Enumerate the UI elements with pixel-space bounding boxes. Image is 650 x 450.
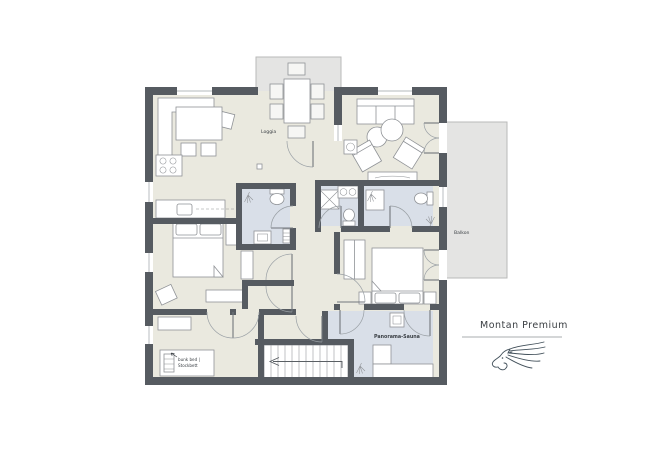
horse-head-logo-icon xyxy=(492,342,545,370)
balcony-door-opening xyxy=(439,250,447,280)
bedroom2-wall-bottom-a xyxy=(364,304,404,310)
balcony-area xyxy=(443,122,507,278)
stairs-wall-right xyxy=(348,345,354,377)
sauna-bench xyxy=(373,364,433,378)
bunk-bed-ladder xyxy=(164,354,174,372)
sauna-heater xyxy=(390,313,404,327)
bath2-wall-bottom xyxy=(341,226,364,232)
bedroom2-wall-bottom-b xyxy=(430,304,447,310)
loggia-table xyxy=(284,79,310,123)
ensuite-wall-right-b xyxy=(290,228,296,244)
column-marker xyxy=(257,164,262,169)
nightstand xyxy=(424,292,436,304)
bunk-bed-label-line1: bunk bed | xyxy=(178,357,200,362)
ensuite-wall-top xyxy=(236,183,296,189)
staircase xyxy=(264,345,348,378)
loggia-chair xyxy=(288,63,305,75)
dining-table xyxy=(176,107,222,140)
floor-plan-drawing: Loggia Balkon Panorama-Sauna bunk bed | … xyxy=(0,0,650,450)
bedroom2-wall-stub xyxy=(334,304,340,310)
hall-wardrobe xyxy=(241,251,253,279)
wall-kitchen-bedroom1 xyxy=(153,218,240,224)
bedroom1-wall-bottom-a xyxy=(153,309,207,315)
sauna-bench xyxy=(373,345,391,364)
floor-plan-page: Loggia Balkon Panorama-Sauna bunk bed | … xyxy=(0,0,650,450)
bedroom2-wall-left xyxy=(334,232,340,274)
brand-name: Montan Premium xyxy=(480,320,568,331)
loggia-chair xyxy=(311,104,324,119)
balcony-door-opening xyxy=(439,123,447,153)
bathrooms-wall-top xyxy=(315,180,439,186)
sauna-label: Panorama-Sauna xyxy=(374,334,420,340)
hall-wall-b xyxy=(242,286,248,309)
sofa xyxy=(357,99,414,124)
bath3-wall-bottom-a xyxy=(364,226,390,232)
bed-bench xyxy=(206,290,243,302)
sauna-wall-left xyxy=(322,311,328,343)
kids-room-wall-right xyxy=(258,315,264,377)
balcony-label: Balkon xyxy=(454,230,470,236)
bath3-wall-bottom-b xyxy=(412,226,439,232)
hall-wall-a xyxy=(242,280,294,286)
wall-loggia-jog xyxy=(334,95,342,125)
ensuite-wall-right-a xyxy=(290,189,296,206)
radiator xyxy=(283,229,290,243)
loggia-chair xyxy=(311,84,324,99)
stairs-wall-top xyxy=(255,339,354,345)
kitchen-sink xyxy=(177,204,192,215)
pillow xyxy=(399,293,420,303)
side-table xyxy=(344,140,357,154)
dining-chair xyxy=(181,143,196,156)
stove xyxy=(156,155,182,176)
loggia-chair xyxy=(270,84,283,99)
dining-chair xyxy=(201,143,216,156)
vanity xyxy=(338,186,358,198)
branding-block: Montan Premium xyxy=(462,320,568,370)
toilet xyxy=(344,209,355,221)
coffee-table xyxy=(381,119,403,141)
nightstand xyxy=(226,223,237,245)
pillow xyxy=(200,224,221,235)
pillow xyxy=(375,293,396,303)
loggia-chair xyxy=(270,104,283,119)
shower xyxy=(366,190,384,210)
bathrooms-divider xyxy=(358,186,364,226)
washbasin xyxy=(254,231,271,244)
ensuite-wall-left xyxy=(236,189,242,250)
bathrooms-wall-left xyxy=(315,186,321,232)
pillow xyxy=(176,224,197,235)
bunk-bed-label-line2: Stockbett xyxy=(178,363,198,368)
loggia-label: Loggia xyxy=(261,129,276,135)
toilet xyxy=(270,194,284,205)
exterior-wall-bottom xyxy=(145,377,447,385)
dresser xyxy=(158,317,191,330)
toilet-tank xyxy=(343,221,355,226)
toilet xyxy=(415,193,428,204)
ensuite-wall-bottom xyxy=(242,244,296,250)
loggia-chair xyxy=(288,126,305,138)
